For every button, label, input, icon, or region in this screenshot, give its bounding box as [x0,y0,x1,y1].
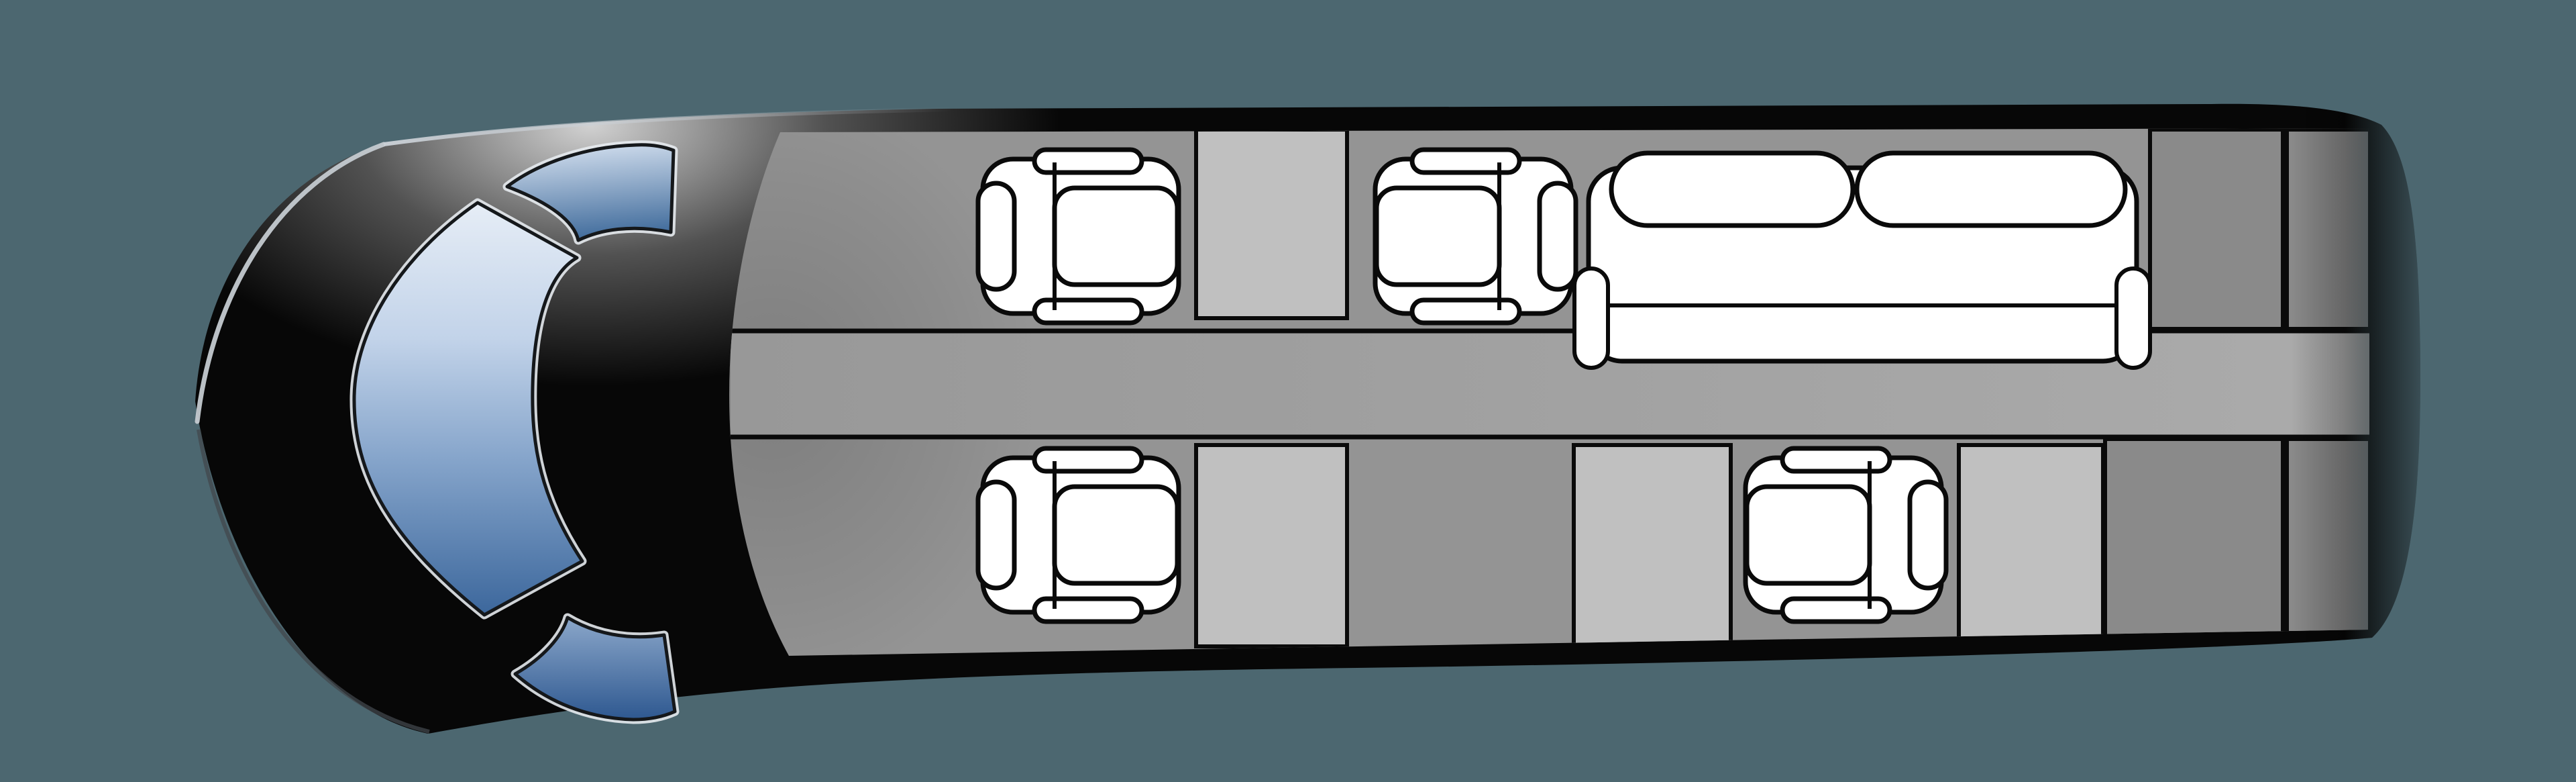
seat-armrest-upper [1782,448,1890,471]
three-place-divan [1574,153,2150,368]
seat-armrest-upper [1034,150,1142,173]
divan-back-cushion-2 [1857,153,2125,226]
cabinet-lower-mid [1574,445,1731,646]
seat-armrest-lower [1034,599,1142,622]
cabinet-lower-forward [1196,445,1347,646]
aft-compartment-upper-left [2150,130,2283,329]
floor-plan-svg [0,0,2576,782]
galley-cabinet-upper [1196,130,1347,318]
cabin-interior [503,91,2370,695]
seat-cushion [1747,487,1870,583]
divan-back-cushion-1 [1611,153,1853,226]
aircraft-cabin-diagram [0,0,2576,782]
club-seat-aft-lower [1746,448,1946,622]
seat-cushion [1377,188,1499,285]
seat-armrest-lower [1782,599,1890,622]
seat-back-bolster [978,482,1014,588]
club-seat-mid-lower [978,448,1179,622]
seat-armrest-lower [1412,300,1519,323]
seat-back-bolster [978,183,1014,289]
seat-back-bolster [1910,482,1946,588]
cabinet-lower-aft [1959,445,2103,646]
divan-armrest-right [2116,268,2150,368]
seat-cushion [1055,188,1177,285]
tail-background-fade [2345,57,2479,742]
seat-armrest-upper [1412,150,1519,173]
seat-cushion [1055,487,1177,583]
club-seat-forward-right [1375,150,1576,323]
club-seat-forward-left [978,150,1179,323]
seat-armrest-upper [1034,448,1142,471]
seat-armrest-lower [1034,300,1142,323]
seat-back-bolster [1540,183,1576,289]
aft-compartment-lower-left [2105,439,2283,640]
divan-armrest-left [1574,268,1608,368]
